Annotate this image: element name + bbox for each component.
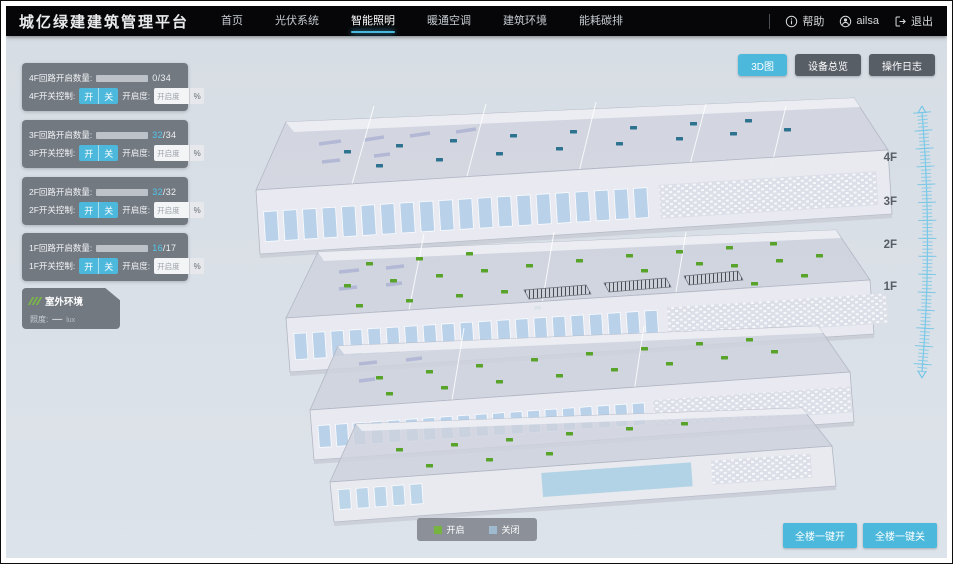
outdoor-env-title: 室外环境 bbox=[45, 294, 83, 308]
help-label: 帮助 bbox=[802, 13, 824, 29]
switch-group: 开 关 bbox=[79, 145, 118, 161]
floor-scale-slider[interactable] bbox=[909, 104, 937, 380]
scale-arrow-down bbox=[918, 371, 926, 378]
nav-item-building-env[interactable]: 建筑环境 bbox=[503, 9, 547, 33]
circuit-count-label: 4F回路开启数量: bbox=[29, 72, 92, 84]
legend-on-label: 开启 bbox=[446, 523, 464, 536]
legend-on-swatch bbox=[433, 526, 441, 534]
openness-label: 开启度: bbox=[122, 90, 150, 102]
switch-control-label: 4F开关控制: bbox=[29, 90, 75, 102]
page-frame: 城亿绿建建筑管理平台 首页 光伏系统 智能照明 暖通空调 建筑环境 能耗碳排 帮… bbox=[0, 0, 953, 564]
building-3d-model[interactable] bbox=[224, 92, 904, 537]
view-switcher: 3D图 设备总览 操作日志 bbox=[738, 54, 935, 76]
nav-item-pv-system[interactable]: 光伏系统 bbox=[275, 9, 319, 33]
nav-item-home[interactable]: 首页 bbox=[221, 9, 243, 33]
circuit-count-label: 1F回路开启数量: bbox=[29, 242, 92, 254]
main-nav: 首页 光伏系统 智能照明 暖通空调 建筑环境 能耗碳排 bbox=[221, 9, 623, 33]
nav-item-energy-carbon[interactable]: 能耗碳排 bbox=[579, 9, 623, 33]
app-title: 城亿绿建建筑管理平台 bbox=[6, 11, 217, 32]
percent-apply-button[interactable]: % bbox=[189, 88, 204, 104]
legend-off-swatch bbox=[489, 526, 497, 534]
percent-apply-button[interactable]: % bbox=[189, 145, 204, 161]
view-3d-button[interactable]: 3D图 bbox=[738, 54, 787, 76]
percent-apply-button[interactable]: % bbox=[189, 258, 204, 274]
circuit-progress-bar bbox=[96, 245, 148, 252]
all-off-button[interactable]: 全楼一键关 bbox=[863, 523, 937, 548]
floor-panel-1f: 1F回路开启数量: 16/17 1F开关控制: 开 关 开启度: % bbox=[22, 233, 188, 281]
nav-item-smart-lighting[interactable]: 智能照明 bbox=[351, 9, 395, 33]
switch-control-label: 2F开关控制: bbox=[29, 204, 75, 216]
status-legend: 开启 关闭 bbox=[416, 518, 536, 541]
floor-tag-4f[interactable]: 4F bbox=[884, 152, 897, 164]
floor-tag-1f[interactable]: 1F bbox=[884, 281, 897, 293]
switch-off-button[interactable]: 关 bbox=[98, 88, 118, 104]
illuminance-label: 照度: bbox=[30, 314, 48, 325]
openness-input[interactable] bbox=[154, 88, 189, 104]
all-on-button[interactable]: 全楼一键开 bbox=[783, 523, 857, 548]
user-menu[interactable]: ailsa bbox=[839, 15, 879, 28]
logout-icon bbox=[894, 15, 907, 28]
openness-control: % bbox=[154, 145, 204, 161]
switch-off-button[interactable]: 关 bbox=[98, 202, 118, 218]
switch-on-button[interactable]: 开 bbox=[79, 88, 98, 104]
logout-button[interactable]: 退出 bbox=[894, 13, 933, 29]
slashes-icon bbox=[30, 297, 40, 305]
floor-panel-3f: 3F回路开启数量: 32/34 3F开关控制: 开 关 开启度: % bbox=[22, 120, 188, 168]
switch-group: 开 关 bbox=[79, 258, 118, 274]
app-window: 城亿绿建建筑管理平台 首页 光伏系统 智能照明 暖通空调 建筑环境 能耗碳排 帮… bbox=[6, 6, 947, 558]
openness-input[interactable] bbox=[154, 145, 189, 161]
legend-off-label: 关闭 bbox=[502, 523, 520, 536]
openness-control: % bbox=[154, 258, 204, 274]
outdoor-env-panel: 室外环境 照度: — lux bbox=[22, 288, 120, 329]
floor-tag-2f[interactable]: 2F bbox=[884, 239, 897, 251]
openness-control: % bbox=[154, 88, 204, 104]
percent-apply-button[interactable]: % bbox=[189, 202, 204, 218]
switch-on-button[interactable]: 开 bbox=[79, 145, 98, 161]
scale-arrow-up bbox=[918, 106, 926, 113]
help-button[interactable]: 帮助 bbox=[785, 13, 824, 29]
username: ailsa bbox=[856, 15, 879, 27]
header-divider bbox=[769, 14, 770, 29]
openness-input[interactable] bbox=[154, 258, 189, 274]
header-user-area: 帮助 ailsa 退出 bbox=[769, 13, 947, 29]
device-overview-button[interactable]: 设备总览 bbox=[795, 54, 861, 76]
circuit-count-label: 3F回路开启数量: bbox=[29, 129, 92, 141]
circuit-count-value: 32/32 bbox=[152, 187, 176, 197]
switch-on-button[interactable]: 开 bbox=[79, 202, 98, 218]
floor-tag-3f[interactable]: 3F bbox=[884, 196, 897, 208]
illuminance-value: — bbox=[52, 314, 62, 325]
floor-panel-2f: 2F回路开启数量: 32/32 2F开关控制: 开 关 开启度: % bbox=[22, 177, 188, 225]
switch-group: 开 关 bbox=[79, 88, 118, 104]
switch-group: 开 关 bbox=[79, 202, 118, 218]
openness-label: 开启度: bbox=[122, 204, 150, 216]
openness-label: 开启度: bbox=[122, 147, 150, 159]
floor-panel-4f: 4F回路开启数量: 0/34 4F开关控制: 开 关 开启度: % bbox=[22, 63, 188, 111]
whole-building-controls: 全楼一键开 全楼一键关 bbox=[783, 523, 937, 548]
operation-log-button[interactable]: 操作日志 bbox=[869, 54, 935, 76]
circuit-count-label: 2F回路开启数量: bbox=[29, 186, 92, 198]
circuit-count-value: 0/34 bbox=[152, 73, 171, 83]
switch-off-button[interactable]: 关 bbox=[98, 258, 118, 274]
illuminance-unit: lux bbox=[66, 317, 75, 324]
floor-1f-model[interactable] bbox=[330, 408, 836, 526]
switch-control-label: 3F开关控制: bbox=[29, 147, 75, 159]
logout-label: 退出 bbox=[911, 13, 933, 29]
switch-off-button[interactable]: 关 bbox=[98, 145, 118, 161]
switch-control-label: 1F开关控制: bbox=[29, 260, 75, 272]
top-header: 城亿绿建建筑管理平台 首页 光伏系统 智能照明 暖通空调 建筑环境 能耗碳排 帮… bbox=[6, 6, 947, 36]
circuit-progress-bar bbox=[96, 132, 148, 139]
circuit-count-value: 16/17 bbox=[152, 243, 176, 253]
openness-control: % bbox=[154, 202, 204, 218]
info-circle-icon bbox=[785, 15, 798, 28]
circuit-progress-bar bbox=[96, 75, 148, 82]
openness-label: 开启度: bbox=[122, 260, 150, 272]
nav-item-hvac[interactable]: 暖通空调 bbox=[427, 9, 471, 33]
circuit-count-value: 32/34 bbox=[152, 130, 176, 140]
user-icon bbox=[839, 15, 852, 28]
main-canvas: 4F回路开启数量: 0/34 4F开关控制: 开 关 开启度: % 3F回路开启… bbox=[6, 36, 947, 558]
openness-input[interactable] bbox=[154, 202, 189, 218]
switch-on-button[interactable]: 开 bbox=[79, 258, 98, 274]
circuit-progress-bar bbox=[96, 189, 148, 196]
